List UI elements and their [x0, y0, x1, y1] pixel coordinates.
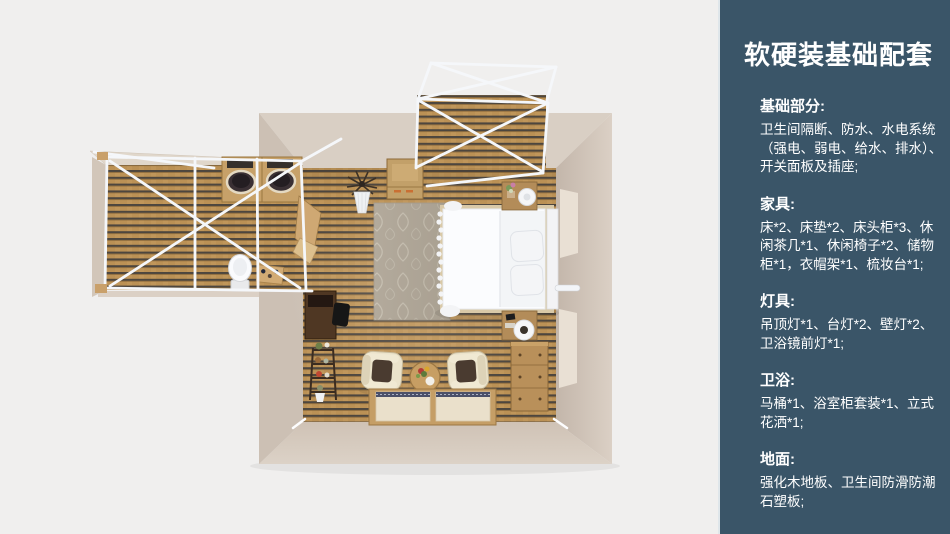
package-panel: 软硬装基础配套 基础部分: 卫生间隔断、防水、水电系统 （强电、弱电、给水、排水… — [718, 0, 950, 534]
frame-end-block-top — [97, 152, 108, 160]
section-flooring: 地面: 强化木地板、卫生间防滑防潮 石塑板; — [744, 450, 944, 511]
section-furniture: 家具: 床*2、床垫*2、床头柜*3、休 闲茶几*1、休闲椅子*2、储物 柜*1… — [744, 195, 944, 275]
floorplan-render — [0, 0, 718, 534]
section-lighting-heading: 灯具: — [760, 292, 944, 312]
package-sections: 基础部分: 卫生间隔断、防水、水电系统 （强电、弱电、给水、排水）、 开关面板及… — [744, 97, 938, 511]
bed-canopy-pole — [555, 285, 580, 291]
section-basics: 基础部分: 卫生间隔断、防水、水电系统 （强电、弱电、给水、排水）、 开关面板及… — [744, 97, 944, 177]
slide: 软硬装基础配套 基础部分: 卫生间隔断、防水、水电系统 （强电、弱电、给水、排水… — [0, 0, 950, 534]
right-wall-window-bottom — [559, 309, 577, 388]
section-basics-body: 卫生间隔断、防水、水电系统 （强电、弱电、给水、排水）、 开关面板及插座; — [760, 121, 944, 177]
double-bed — [435, 201, 580, 322]
headboard — [547, 209, 558, 309]
bathroom-vanity — [222, 157, 302, 202]
table-lamp-bottom — [514, 320, 534, 340]
section-flooring-body: 强化木地板、卫生间防滑防潮 石塑板; — [760, 474, 944, 511]
tatami-mats — [369, 389, 496, 425]
section-lighting: 灯具: 吊顶灯*1、台灯*2、壁灯*2、 卫浴镜前灯*1; — [744, 292, 944, 353]
nightstand-top — [502, 182, 537, 210]
panel-title: 软硬装基础配套 — [744, 40, 938, 71]
frame-end-block-bottom — [95, 284, 107, 293]
desk-chair — [332, 302, 351, 327]
nightstand-bottom — [502, 311, 537, 340]
section-bathroom-body: 马桶*1、浴室柜套装*1、立式 花洒*1; — [760, 395, 944, 432]
section-furniture-heading: 家具: — [760, 195, 944, 215]
toilet — [229, 255, 252, 292]
section-bathroom: 卫浴: 马桶*1、浴室柜套装*1、立式 花洒*1; — [744, 371, 944, 432]
section-furniture-body: 床*2、床垫*2、床头柜*3、休 闲茶几*1、休闲椅子*2、储物 柜*1，衣帽架… — [760, 219, 944, 275]
section-basics-heading: 基础部分: — [760, 97, 944, 117]
table-lamp-top — [519, 189, 536, 206]
section-lighting-body: 吊顶灯*1、台灯*2、壁灯*2、 卫浴镜前灯*1; — [760, 316, 944, 353]
wardrobe-cabinet — [387, 159, 423, 199]
section-flooring-heading: 地面: — [760, 450, 944, 470]
section-bathroom-heading: 卫浴: — [760, 371, 944, 391]
right-wall-window-top — [560, 189, 578, 258]
dresser — [511, 342, 548, 411]
